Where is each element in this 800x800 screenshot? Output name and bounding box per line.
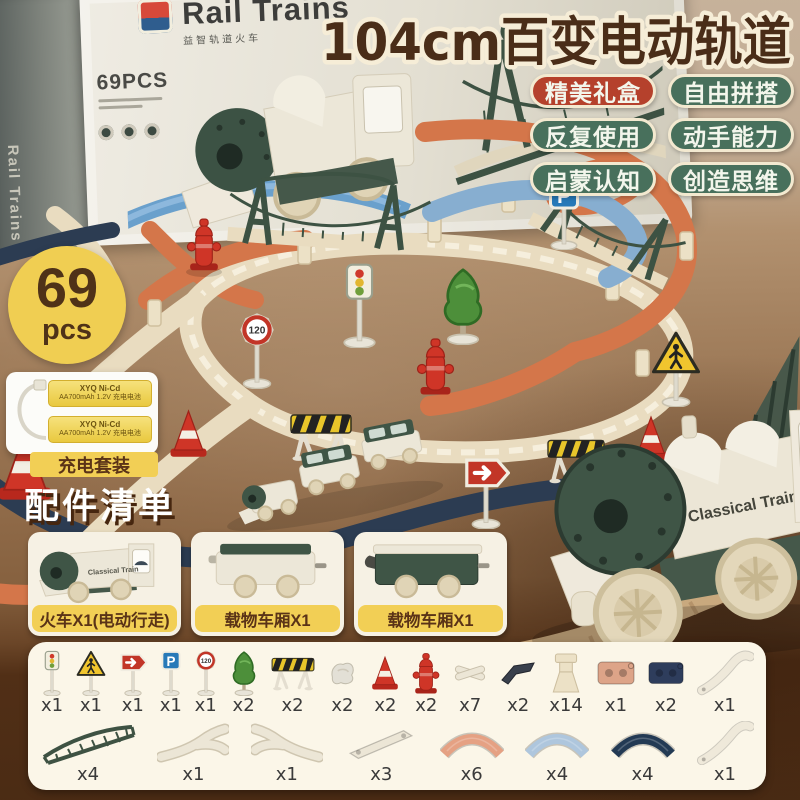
part-count: x2 (331, 696, 353, 716)
headline: 104cm百变电动轨道 (312, 2, 800, 82)
feature-badge: 动手能力 (668, 118, 794, 152)
part-count: x1 (714, 765, 736, 785)
part-item: x1 (696, 721, 754, 785)
part-item: x2 (270, 650, 316, 716)
part-item: x3 (344, 721, 418, 785)
part-count: x1 (160, 696, 182, 716)
part-item: x1 (251, 721, 323, 785)
part-item: x6 (440, 721, 504, 785)
part-count: x4 (631, 765, 653, 785)
battery-cell-brand: XYQ Ni-Cd (49, 420, 151, 430)
charger-wire (10, 378, 48, 448)
part-item: x4 (611, 721, 675, 785)
accessories-title: 配件清单 (24, 478, 176, 529)
feature-badge: 创造思维 (668, 162, 794, 196)
part-item: x1 (157, 721, 229, 785)
part-item: x2 (229, 650, 259, 716)
track-long-icon (696, 721, 754, 765)
battery-cell: XYQ Ni-Cd AA700mAh 1.2V 充电电池 (48, 416, 152, 443)
vehicle-cards: Classical Train 火车X1(电动行走) 载物车厢X1 (28, 532, 507, 636)
track-support-icon (547, 650, 585, 696)
part-item: x1 (40, 650, 64, 716)
toy-train-wagon (359, 418, 424, 471)
part-count: x1 (122, 696, 144, 716)
track-switch-alt-icon (251, 721, 323, 765)
barrier-icon (270, 650, 316, 696)
piece-count-unit: pcs (8, 316, 126, 345)
feature-badge: 反复使用 (530, 118, 656, 152)
part-count: x1 (276, 765, 298, 785)
part-count: x2 (655, 696, 677, 716)
part-count: x4 (546, 765, 568, 785)
part-count: x1 (605, 696, 627, 716)
battery-cell-spec: AA700mAh 1.2V 充电电池 (49, 394, 151, 402)
part-item: x14 (547, 650, 585, 716)
battery-cell: XYQ Ni-Cd AA700mAh 1.2V 充电电池 (48, 380, 152, 407)
track-curve-icon (611, 721, 675, 765)
hydrant-icon (412, 650, 440, 696)
track-long-icon (696, 650, 754, 696)
part-count: x6 (461, 765, 483, 785)
track-clip-icon (451, 650, 489, 696)
wagon-white-image (195, 536, 340, 604)
part-item: x7 (451, 650, 489, 716)
white-marker-icon (326, 650, 358, 696)
part-count: x4 (77, 765, 99, 785)
locomotive-foreground: Classical Train (520, 389, 800, 667)
crossing-sign-icon (75, 650, 107, 696)
product-poster: Rail Trains Rail Trains 益智轨道火车 69PCS (0, 0, 800, 800)
parts-row-2: x4x1x1x3x6x4x4x1 (40, 716, 754, 785)
part-item: x4 (525, 721, 589, 785)
part-count: x2 (374, 696, 396, 716)
part-item: x2 (647, 650, 685, 716)
part-count: x7 (459, 696, 481, 716)
parking-sign-icon (159, 650, 183, 696)
battery-pack-card: XYQ Ni-Cd AA700mAh 1.2V 充电电池 XYQ Ni-Cd A… (6, 372, 158, 454)
feature-badge: 精美礼盒 (530, 74, 656, 108)
hydrant-icon (418, 339, 454, 395)
piece-count-number: 69 (8, 260, 126, 316)
part-item: x1 (696, 650, 754, 716)
part-count: x1 (41, 696, 63, 716)
part-count: x2 (281, 696, 303, 716)
feature-badge: 自由拼搭 (668, 74, 794, 108)
speed-sign-icon (194, 650, 218, 696)
part-item: x2 (326, 650, 358, 716)
part-item: x1 (75, 650, 107, 716)
part-count: x1 (714, 696, 736, 716)
part-item: x2 (369, 650, 401, 716)
part-count: x2 (233, 696, 255, 716)
vehicle-card-locomotive: Classical Train 火车X1(电动行走) (28, 532, 181, 636)
track-short-icon (596, 650, 636, 696)
track-curve-icon (440, 721, 504, 765)
traffic-light-icon (40, 650, 64, 696)
track-switch-icon (157, 721, 229, 765)
battery-cell-spec: AA700mAh 1.2V 充电电池 (49, 430, 151, 438)
track-short-icon (647, 650, 685, 696)
part-count: x3 (370, 765, 392, 785)
vehicle-card-wagon-white: 载物车厢X1 (191, 532, 344, 636)
parts-row-1: x1x1x1x1x1x2x2x2x2x2x7x2x14x1x2x1 (40, 647, 754, 716)
locomotive-image: Classical Train (32, 536, 177, 604)
suspension-bridge-left (227, 166, 432, 256)
vehicle-card-label: 载物车厢X1 (358, 605, 503, 632)
part-count: x1 (80, 696, 102, 716)
part-count: x2 (415, 696, 437, 716)
part-item: x2 (500, 650, 536, 716)
tree-icon (445, 270, 481, 345)
feature-badge: 启蒙认知 (530, 162, 656, 196)
vehicle-card-label: 载物车厢X1 (195, 605, 340, 632)
speed-sign-icon (241, 314, 273, 388)
bridge-truss-icon (40, 721, 136, 765)
tree-icon (229, 650, 259, 696)
cone-icon (369, 650, 401, 696)
part-count: x1 (182, 765, 204, 785)
part-count: x2 (507, 696, 529, 716)
vehicle-card-wagon-dark: 载物车厢X1 (354, 532, 507, 636)
part-count: x14 (549, 696, 583, 716)
wagon-dark-image (358, 536, 503, 604)
headline-text: 104cm百变电动轨道 (321, 13, 791, 73)
part-item: x1 (159, 650, 183, 716)
track-straight-icon (344, 721, 418, 765)
track-piece-dark-icon (500, 650, 536, 696)
vehicle-card-label: 火车X1(电动行走) (32, 605, 177, 632)
part-item: x1 (118, 650, 148, 716)
part-item: x2 (412, 650, 440, 716)
piece-count-badge: 69 pcs (8, 246, 126, 364)
arrow-sign-icon (118, 650, 148, 696)
track-curve-icon (525, 721, 589, 765)
parts-list-panel: x1x1x1x1x1x2x2x2x2x2x7x2x14x1x2x1 x4x1x1… (28, 642, 766, 790)
feature-badges: 精美礼盒 自由拼搭 反复使用 动手能力 启蒙认知 创造思维 (530, 74, 796, 196)
part-item: x1 (596, 650, 636, 716)
traffic-light-icon (344, 265, 374, 348)
battery-cell-brand: XYQ Ni-Cd (49, 384, 151, 394)
part-count: x1 (195, 696, 217, 716)
battery-set-label: 充电套装 (30, 452, 158, 477)
part-item: x1 (194, 650, 218, 716)
part-item: x4 (40, 721, 136, 785)
